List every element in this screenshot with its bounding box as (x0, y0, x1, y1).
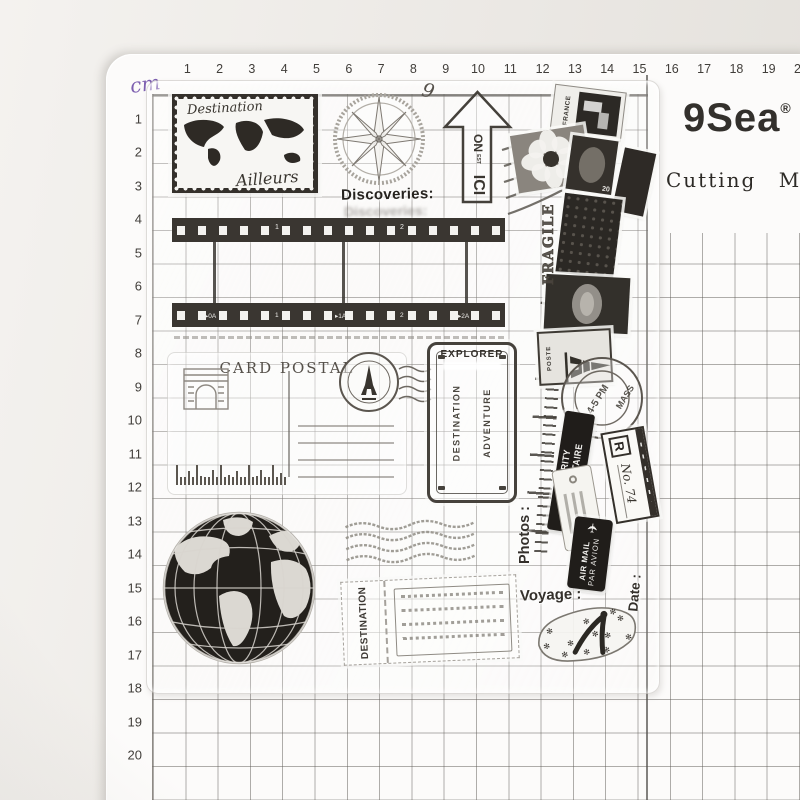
explorer-frame-stamp: EXPLORER DESTINATION ADVENTURE (427, 342, 517, 503)
flower-pattern-glyph: ✻ (609, 607, 617, 617)
registered-number: No. 74 (617, 462, 641, 518)
ruler-left-number: 5 (108, 245, 142, 260)
barcode-bar (252, 477, 254, 485)
ruler-top-number: 8 (410, 62, 417, 76)
ruler-left-number: 20 (108, 748, 142, 763)
film-frame-mark: 2 (400, 312, 404, 319)
ruler-left-number: 2 (108, 145, 142, 160)
portrait-oval (577, 145, 608, 184)
ticket-dotted-line (403, 633, 505, 640)
postcard-writing-line (298, 442, 394, 444)
ruler-left-number: 14 (108, 547, 142, 562)
barcode-bar (240, 477, 242, 485)
film-frame-mark: 1 (275, 312, 279, 319)
registered-mark: ® (780, 100, 790, 116)
destination-postage-stamp: Destination Ailleurs (172, 94, 318, 193)
compass-rose-icon (332, 92, 426, 186)
ruler-left-number: 7 (108, 312, 142, 327)
barcode-bar (256, 476, 258, 485)
flower-pattern-glyph: ✻ (624, 632, 632, 642)
stamp-value: 20 (601, 186, 610, 194)
barcode-bar (268, 477, 270, 485)
ruler-left-number: 1 (108, 111, 142, 126)
flower-pattern-glyph: ✻ (604, 630, 612, 640)
ruler-left-number: 11 (108, 446, 142, 461)
ruler-top-number: 1 (184, 62, 191, 76)
ruler-left-number: 3 (108, 178, 142, 193)
film-frame-divider (465, 240, 468, 305)
ruler-left-number: 17 (108, 647, 142, 662)
barcode-bar (208, 477, 210, 485)
barcode-bar (176, 465, 178, 485)
ticket-dotted-line (401, 591, 503, 598)
corner-mark (499, 355, 506, 359)
ruler-top-number: 2 (216, 62, 223, 76)
france-label: FRANCE (562, 95, 573, 126)
arrow-word-est: EST (475, 154, 481, 164)
brand-name: 9Sea (683, 96, 780, 140)
globe-stamp (161, 510, 317, 666)
eiffel-postmark-icon (337, 351, 441, 415)
fragile-label: FRAGILE (541, 203, 557, 285)
product-photo-clear-stamp-set: 9Sea® Cutting Mat cm 1234567891011121314… (0, 0, 800, 800)
ruler-left-number: 15 (108, 580, 142, 595)
ailleurs-script-text: Ailleurs (236, 167, 300, 188)
ruler-left-number: 19 (108, 714, 142, 729)
ruler-top-number: 17 (697, 62, 711, 76)
ruler-top-number: 9 (442, 62, 449, 76)
corner-mark (438, 355, 445, 359)
discoveries-text: Discoveries: (341, 185, 434, 204)
ruler-left-number: 13 (108, 513, 142, 528)
perforation-dashed-line (174, 336, 504, 339)
barcode-bar (224, 477, 226, 485)
flower-pattern-glyph: ✻ (603, 645, 611, 655)
film-frame-number: 2 (400, 224, 404, 231)
card-postal-stamp: CARD POSTAL (167, 352, 407, 495)
photos-text: Photos : (517, 485, 537, 585)
ruler-top-number: 10 (471, 62, 485, 76)
ticket-lines-box (394, 583, 513, 656)
ruler-left-number: 8 (108, 346, 142, 361)
airplane-icon: ✈ (585, 522, 602, 535)
ruler-left-number: 4 (108, 212, 142, 227)
barcode-bar (228, 475, 230, 485)
postcard-writing-line (298, 425, 394, 427)
ruler-top-number: 15 (633, 62, 647, 76)
flower-pattern-glyph: ✻ (561, 650, 569, 660)
flower-pattern-glyph: ✻ (545, 626, 553, 636)
film-frame-divider (213, 240, 216, 305)
explorer-title: EXPLORER (440, 349, 503, 360)
corner-mark (438, 486, 445, 490)
ruler-top-number: 12 (536, 62, 550, 76)
ruler-top-number: 19 (762, 62, 776, 76)
barcode-bar (244, 477, 246, 485)
flower-pattern-glyph: ✻ (543, 641, 551, 651)
portrait-postage-stamp: 20 (565, 135, 618, 195)
film-sprocket-band-top (172, 218, 505, 242)
ruler-top-number: 13 (568, 62, 582, 76)
arrow-word-on: ON (471, 134, 485, 152)
monument-sketch-icon (176, 361, 236, 413)
product-name: Cutting Mat (666, 168, 800, 192)
film-strip-stamp: 12▸0A1▸1A2▸2A (172, 218, 505, 327)
barcode-bar (184, 477, 186, 485)
ticket-label: DESTINATION (357, 586, 371, 659)
wavy-postmark-stamp (342, 516, 480, 567)
barcode-bar (284, 477, 286, 485)
card-postal-title: CARD POSTAL (219, 359, 354, 377)
ruler-top-number: 18 (729, 62, 743, 76)
ruler-left-number: 18 (108, 681, 142, 696)
barcode-bar (264, 477, 266, 485)
postcard-writing-line (298, 476, 394, 478)
barcode-bar (196, 465, 198, 485)
barcode-bar (232, 477, 234, 485)
ticket-stub: DESTINATION (341, 581, 389, 665)
barcode-bar (216, 477, 218, 485)
barcode-bar (200, 476, 202, 485)
film-frame-number: 1 (275, 224, 279, 231)
registered-letter-box: R (608, 435, 631, 458)
barcode-bar (180, 477, 182, 485)
barcode-bar (280, 473, 282, 485)
film-frame-divider (342, 240, 345, 305)
corner-mark (499, 486, 506, 490)
film-frame-mark: ▸2A (458, 312, 469, 320)
world-map-icon (178, 115, 312, 173)
ruler-left-number: 12 (108, 480, 142, 495)
ruler-top-number: 4 (281, 62, 288, 76)
barcode-bar (276, 477, 278, 485)
barcode-bar (260, 470, 262, 485)
brand-logo: 9Sea® (683, 96, 791, 141)
ruler-left-number: 9 (108, 379, 142, 394)
flower-pattern-glyph: ✻ (591, 629, 599, 639)
ruler-top-number: 16 (665, 62, 679, 76)
film-frame-mark: ▸0A (205, 312, 216, 320)
embossed-highlight (443, 362, 501, 370)
film-frame-mark: ▸1A (335, 312, 346, 320)
ruler-top-number: 20 (794, 62, 800, 76)
ruler-top-number: 7 (378, 62, 385, 76)
ruler-left-number: 16 (108, 614, 142, 629)
ruler-top-number: 5 (313, 62, 320, 76)
globe-icon (161, 510, 317, 666)
ruler-top-number: 6 (345, 62, 352, 76)
barcode-bar (220, 465, 222, 485)
fragile-text: FRAGILE (534, 194, 564, 294)
flower-pattern-glyph: ✻ (583, 647, 591, 657)
barcode-ticks (176, 455, 296, 485)
explorer-right-text: ADVENTURE (482, 388, 492, 458)
barcode-bar (188, 471, 190, 485)
ruler-left-number: 6 (108, 279, 142, 294)
explorer-left-text: DESTINATION (451, 384, 461, 461)
compass-rose-stamp (332, 92, 426, 186)
barcode-bar (248, 465, 250, 485)
oval-center (571, 283, 603, 325)
tag-hole (568, 475, 577, 484)
explorer-inner-frame (436, 351, 508, 494)
destination-ticket-stamp: DESTINATION (340, 574, 519, 666)
ruler-top-number: 14 (600, 62, 614, 76)
dark-postage-stamp (555, 193, 622, 279)
ruler-top-number: 11 (504, 62, 517, 76)
barcode-bar (212, 470, 214, 485)
flower-pattern-glyph: ✻ (582, 617, 590, 627)
ruler-left-number: 10 (108, 413, 142, 428)
barcode-bar (204, 477, 206, 485)
ruler-top-number: 3 (248, 62, 255, 76)
flower-pattern-glyph: ✻ (566, 638, 574, 648)
barcode-bar (272, 465, 274, 485)
ticket-dotted-line (402, 605, 504, 612)
barcode-bar (192, 477, 194, 485)
arrow-word-ici: ICI (469, 175, 487, 195)
barcode-bar (236, 471, 238, 485)
postcard-writing-line (298, 459, 394, 461)
ticket-dotted-line (402, 619, 504, 626)
